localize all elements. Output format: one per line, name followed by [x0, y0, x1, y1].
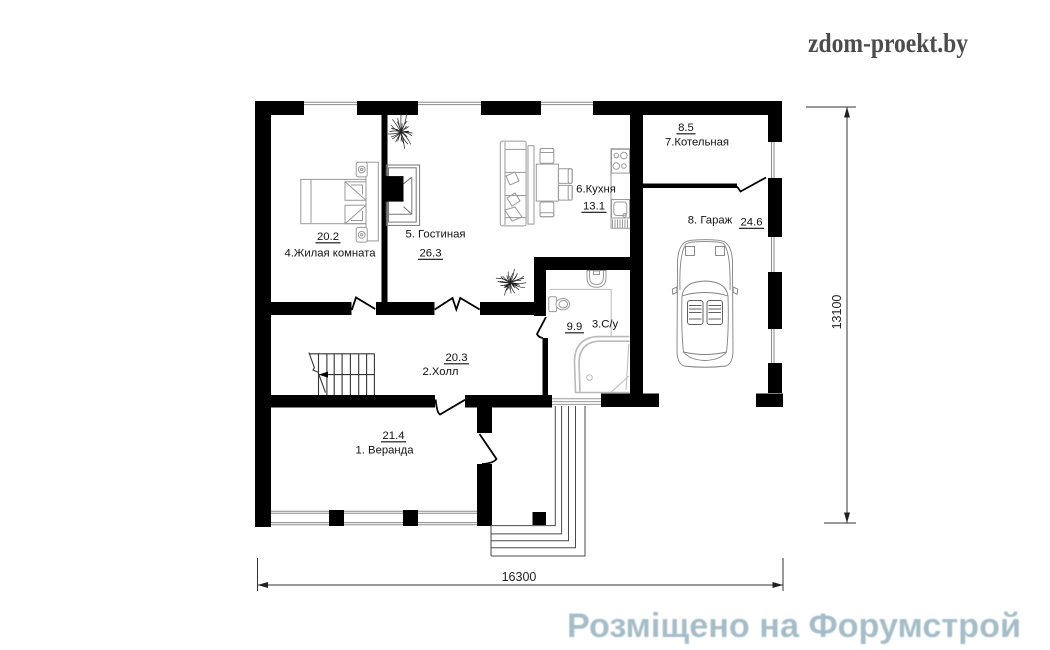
svg-text:4.Жилая комната: 4.Жилая комната	[284, 248, 376, 260]
svg-text:8.5: 8.5	[678, 122, 694, 134]
svg-text:13100: 13100	[830, 295, 844, 330]
svg-text:3.С/у: 3.С/у	[592, 319, 619, 331]
svg-text:1. Веранда: 1. Веранда	[355, 445, 414, 457]
svg-text:6.Кухня: 6.Кухня	[576, 184, 616, 196]
svg-text:zdom-proekt.by: zdom-proekt.by	[808, 28, 968, 58]
svg-text:13.1: 13.1	[583, 201, 605, 213]
svg-text:26.3: 26.3	[420, 248, 442, 260]
svg-text:8. Гараж: 8. Гараж	[688, 215, 733, 227]
svg-text:16300: 16300	[502, 570, 537, 584]
svg-text:20.3: 20.3	[446, 352, 468, 364]
svg-text:2.Холл: 2.Холл	[422, 366, 458, 378]
svg-text:5. Гостиная: 5. Гостиная	[406, 229, 466, 241]
svg-text:7.Котельная: 7.Котельная	[665, 137, 729, 149]
svg-text:21.4: 21.4	[383, 430, 405, 442]
svg-text:9.9: 9.9	[567, 321, 583, 333]
svg-text:20.2: 20.2	[317, 231, 339, 243]
svg-text:24.6: 24.6	[741, 217, 763, 229]
svg-text:Розміщено на Форумстрой: Розміщено на Форумстрой	[567, 607, 1021, 645]
